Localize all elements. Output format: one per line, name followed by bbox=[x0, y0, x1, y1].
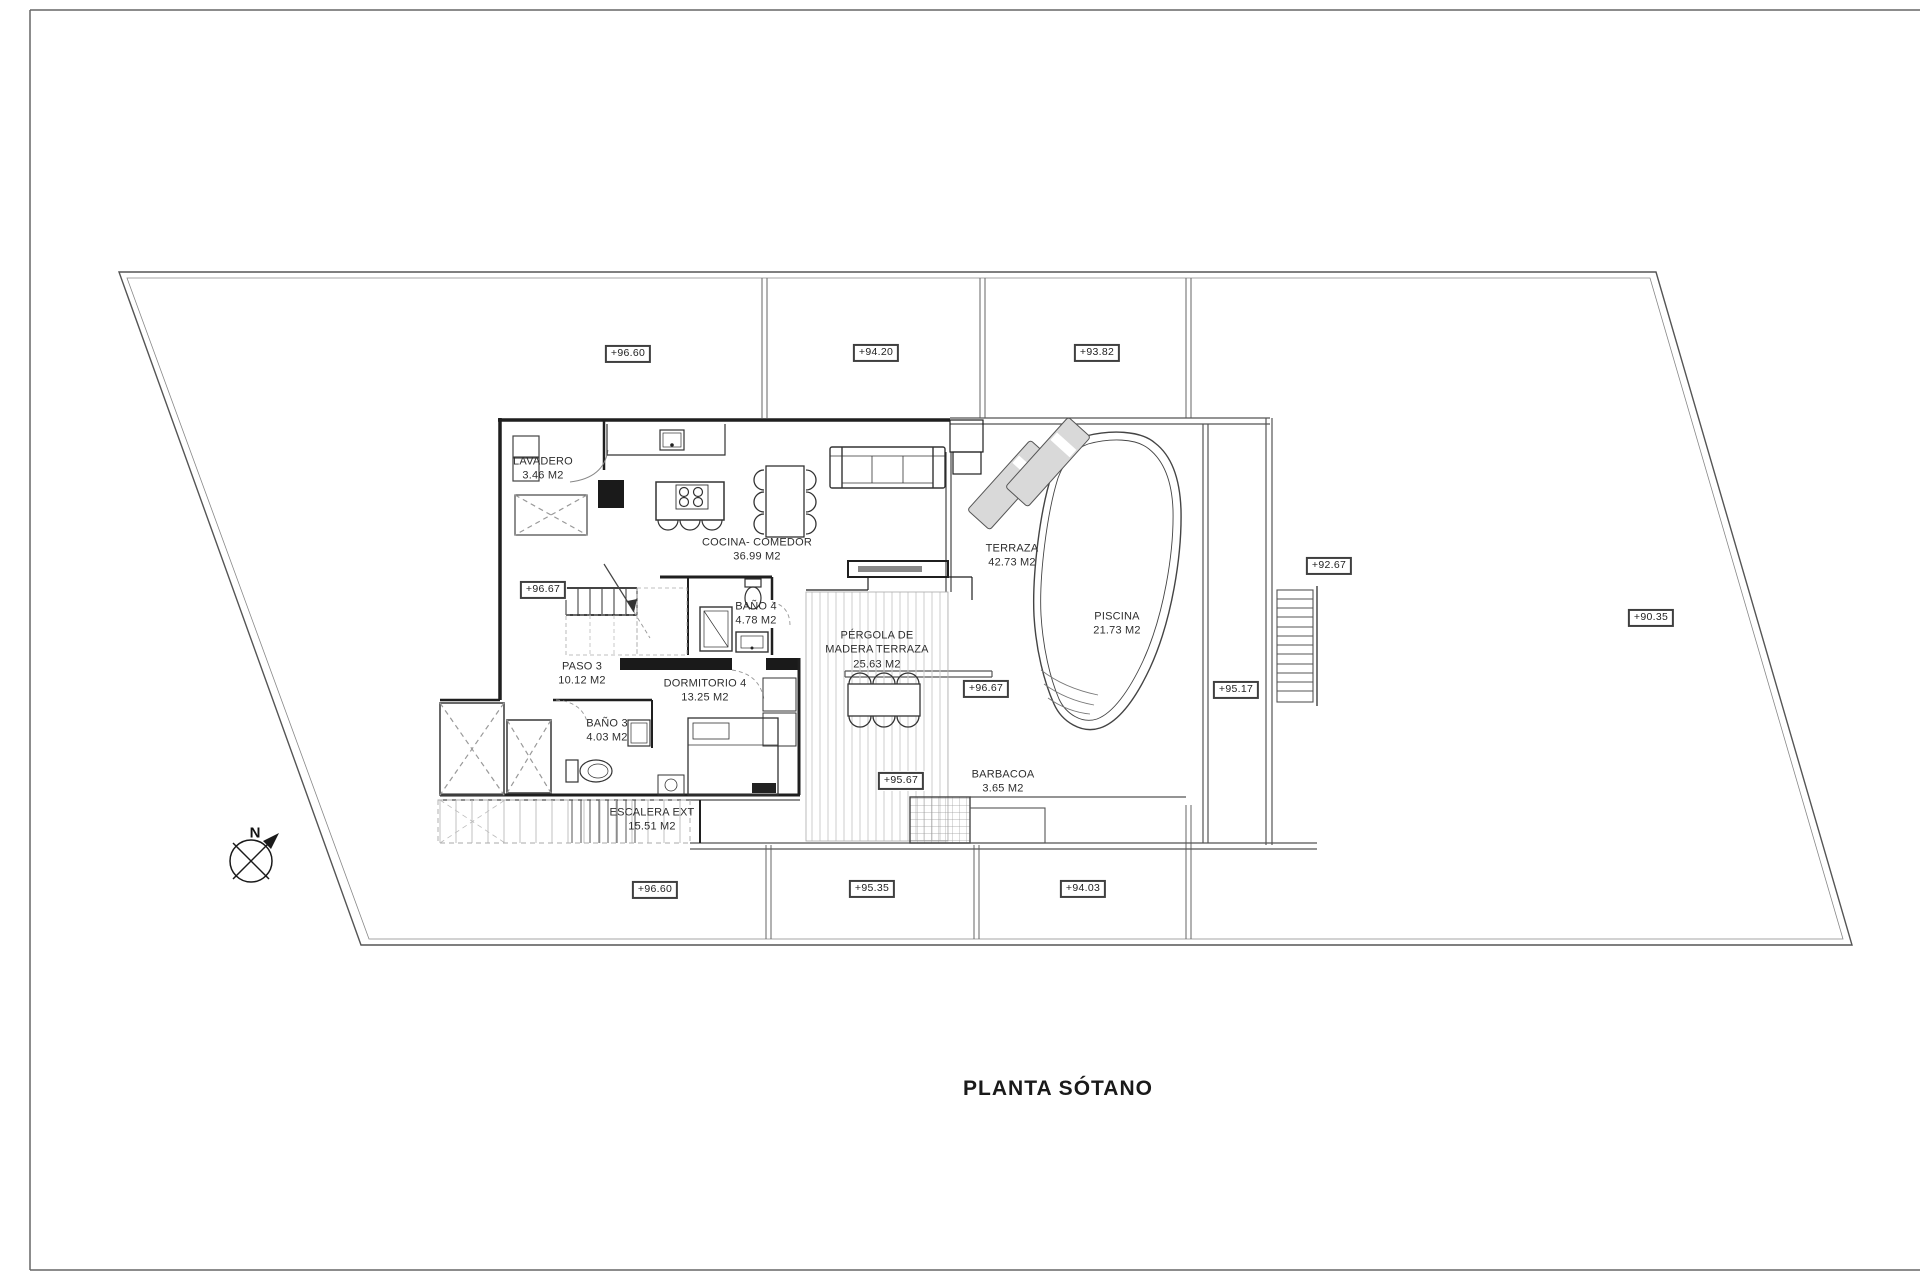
room-area: 36.99 M2 bbox=[702, 550, 812, 564]
room-label-bano4: BAÑO 4 4.78 M2 bbox=[735, 600, 777, 629]
room-name: ESCALERA EXT bbox=[610, 806, 695, 820]
elevation-marker-top-left: +96.60 bbox=[605, 345, 651, 363]
room-area: 42.73 M2 bbox=[986, 556, 1039, 570]
sun-loungers bbox=[967, 417, 1090, 530]
room-label-cocina-comedor: COCINA- COMEDOR 36.99 M2 bbox=[702, 536, 812, 565]
room-name: PISCINA bbox=[1093, 610, 1140, 624]
room-label-dormitorio4: DORMITORIO 4 13.25 M2 bbox=[664, 677, 747, 706]
room-name: TERRAZA bbox=[986, 542, 1039, 556]
closets bbox=[440, 436, 587, 795]
room-name: COCINA- COMEDOR bbox=[702, 536, 812, 550]
room-name: BAÑO 4 bbox=[735, 600, 777, 614]
room-area: 21.73 M2 bbox=[1093, 624, 1140, 638]
sofa bbox=[830, 447, 945, 488]
elevation-marker-plot-east: +90.35 bbox=[1628, 609, 1674, 627]
elevation-marker-stair-low: +95.17 bbox=[1213, 681, 1259, 699]
elevation-marker-terrace-mid: +96.67 bbox=[963, 680, 1009, 698]
elevation-marker-bottom-left: +96.60 bbox=[632, 881, 678, 899]
room-label-lavadero: LAVADERO 3.46 M2 bbox=[513, 455, 573, 484]
room-label-pergola: PÉRGOLA DE MADERA TERRAZA 25.63 M2 bbox=[818, 629, 936, 672]
north-label: N bbox=[250, 825, 261, 842]
page-title: PLANTA SÓTANO bbox=[963, 1077, 1153, 1101]
room-label-barbacoa: BARBACOA 3.65 M2 bbox=[972, 768, 1035, 797]
room-area: 13.25 M2 bbox=[664, 691, 747, 705]
room-name: LAVADERO bbox=[513, 455, 573, 469]
elevation-marker-bottom-mid: +95.35 bbox=[849, 880, 895, 898]
room-area: 15.51 M2 bbox=[610, 820, 695, 834]
room-area: 3.46 M2 bbox=[513, 469, 573, 483]
elevation-marker-stair-top: +92.67 bbox=[1306, 557, 1352, 575]
room-area: 3.65 M2 bbox=[972, 782, 1035, 796]
floorplan-sheet: LAVADERO 3.46 M2 COCINA- COMEDOR 36.99 M… bbox=[0, 0, 1920, 1280]
room-area: 25.63 M2 bbox=[818, 657, 936, 671]
room-label-escalera-ext: ESCALERA EXT 15.51 M2 bbox=[610, 806, 695, 835]
room-label-bano3: BAÑO 3 4.03 M2 bbox=[586, 717, 628, 746]
elevation-marker-top-mid: +94.20 bbox=[853, 344, 899, 362]
room-label-piscina: PISCINA 21.73 M2 bbox=[1093, 610, 1140, 639]
room-name: PASO 3 bbox=[558, 660, 605, 674]
room-label-terraza: TERRAZA 42.73 M2 bbox=[986, 542, 1039, 571]
kitchen-island bbox=[607, 424, 725, 530]
exterior-stair-right bbox=[1277, 586, 1317, 706]
room-label-paso3: PASO 3 10.12 M2 bbox=[558, 660, 605, 689]
dining-table bbox=[754, 466, 816, 537]
room-name: BAÑO 3 bbox=[586, 717, 628, 731]
room-area: 4.03 M2 bbox=[586, 731, 628, 745]
elevation-marker-top-right: +93.82 bbox=[1074, 344, 1120, 362]
elevation-marker-bottom-right: +94.03 bbox=[1060, 880, 1106, 898]
room-name: BARBACOA bbox=[972, 768, 1035, 782]
elevation-marker-entry: +96.67 bbox=[520, 581, 566, 599]
barbecue bbox=[910, 797, 1045, 843]
room-area: 4.78 M2 bbox=[735, 614, 777, 628]
pool-outline bbox=[1034, 432, 1181, 729]
floorplan-linework bbox=[0, 0, 1920, 1280]
room-area: 10.12 M2 bbox=[558, 674, 605, 688]
room-name: DORMITORIO 4 bbox=[664, 677, 747, 691]
elevation-marker-pergola-low: +95.67 bbox=[878, 772, 924, 790]
room-name: PÉRGOLA DE MADERA TERRAZA bbox=[818, 629, 936, 658]
